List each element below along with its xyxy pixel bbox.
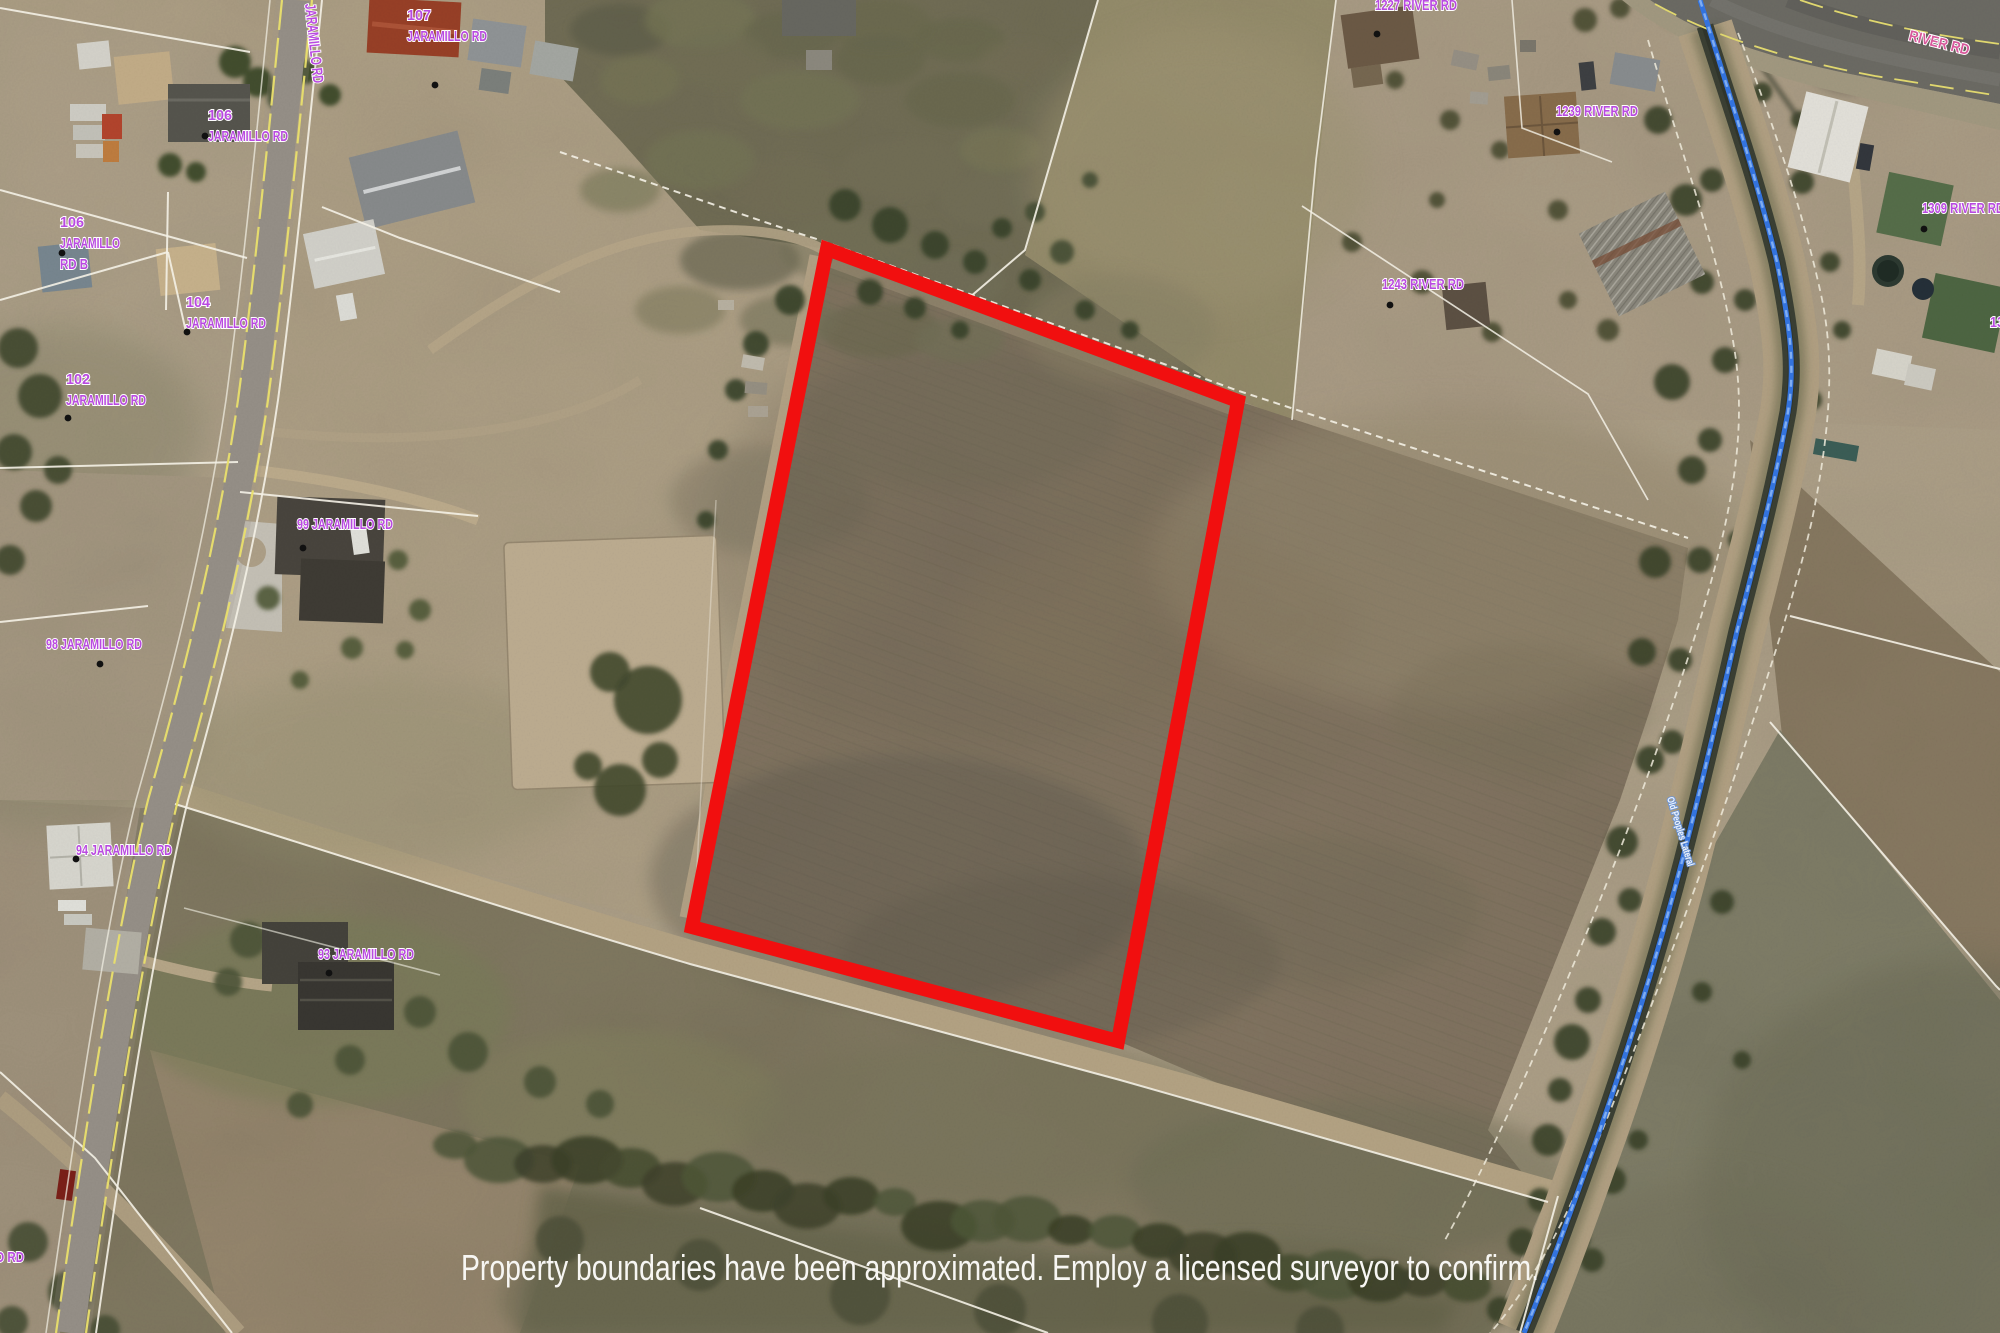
svg-text:102: 102: [66, 371, 90, 388]
svg-text:99 JARAMILLO RD: 99 JARAMILLO RD: [297, 516, 393, 533]
svg-text:13: 13: [1990, 314, 2000, 331]
svg-text:1239 RIVER RD: 1239 RIVER RD: [1556, 103, 1638, 120]
svg-text:93 JARAMILLO RD: 93 JARAMILLO RD: [318, 946, 414, 963]
svg-text:1227 RIVER RD: 1227 RIVER RD: [1375, 0, 1457, 14]
svg-text:ILLO RD: ILLO RD: [0, 1249, 24, 1266]
svg-text:Property boundaries have been: Property boundaries have been approximat…: [461, 1247, 1539, 1288]
svg-text:1309 RIVER RD: 1309 RIVER RD: [1922, 200, 2000, 217]
svg-text:JARAMILLO: JARAMILLO: [60, 235, 120, 252]
svg-text:JARAMILLO RD: JARAMILLO RD: [208, 128, 288, 145]
svg-text:106: 106: [60, 214, 84, 231]
svg-text:JARAMILLO RD: JARAMILLO RD: [66, 392, 146, 409]
svg-text:106: 106: [208, 107, 232, 124]
svg-text:107: 107: [407, 7, 431, 24]
svg-text:94 JARAMILLO RD: 94 JARAMILLO RD: [76, 842, 172, 859]
svg-text:JARAMILLO RD: JARAMILLO RD: [407, 28, 487, 45]
svg-text:104: 104: [186, 294, 211, 311]
svg-text:1243 RIVER RD: 1243 RIVER RD: [1382, 276, 1464, 293]
svg-text:RD B: RD B: [60, 256, 88, 273]
svg-text:98 JARAMILLO RD: 98 JARAMILLO RD: [46, 636, 142, 653]
svg-text:JARAMILLO RD: JARAMILLO RD: [186, 315, 266, 332]
